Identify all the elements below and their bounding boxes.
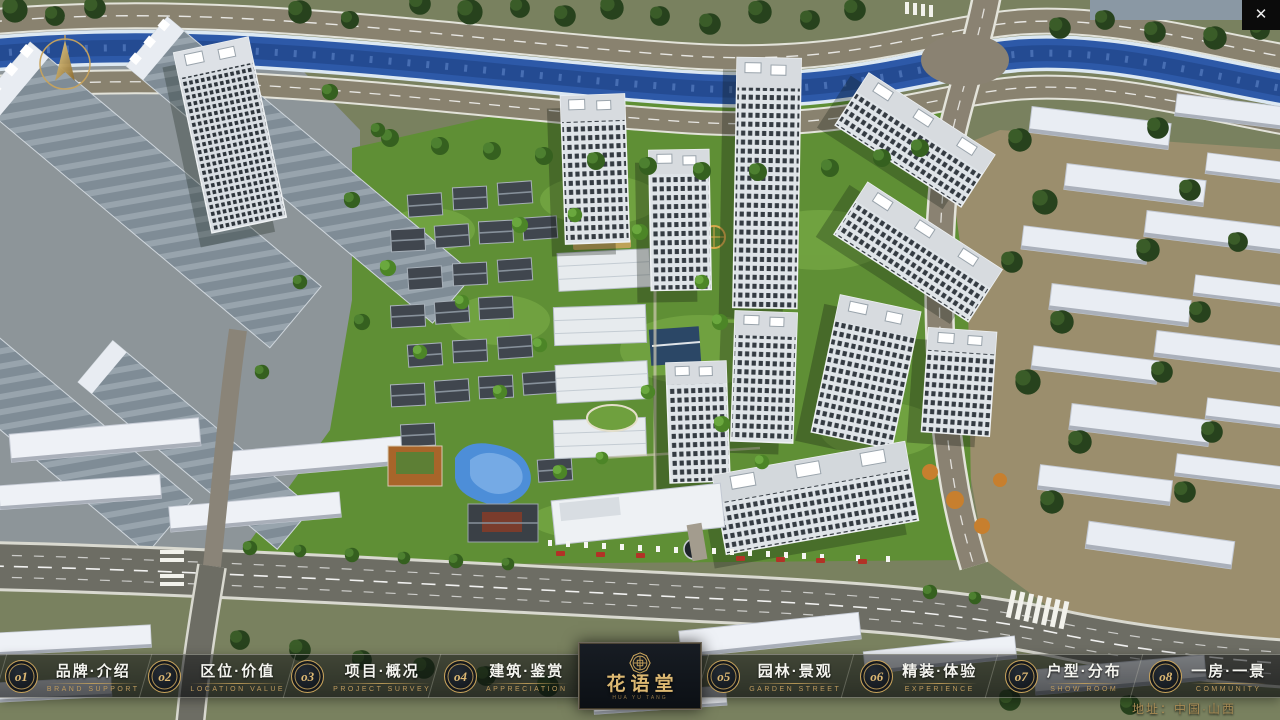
project-address: 地址：中国·山西 <box>1132 700 1236 717</box>
nav-item-floorplan[interactable]: o7 户型·分布 SHOW ROOM <box>991 655 1136 697</box>
seal-emblem-icon <box>629 652 651 674</box>
gold-divider <box>190 683 285 684</box>
compass-icon <box>36 34 94 92</box>
nav-badge-icon: o1 <box>5 660 38 693</box>
bottom-navbar: o1 品牌·介绍 BRAND SUPPORT o2 区位·价值 LOCATION… <box>0 654 1280 698</box>
nav-title: 一房·一景 <box>1191 660 1266 681</box>
close-button[interactable]: ✕ <box>1242 0 1280 30</box>
bridge <box>921 34 1009 86</box>
nav-badge-icon: o3 <box>291 660 324 693</box>
nav-title: 品牌·介绍 <box>56 660 131 681</box>
logo-title: 花语堂 <box>601 675 678 694</box>
nav-subtitle: SHOW ROOM <box>1050 686 1118 693</box>
project-logo[interactable]: 花语堂 HUA YU TANG <box>578 642 702 710</box>
gold-divider <box>902 683 977 684</box>
gold-divider <box>47 683 140 684</box>
nav-subtitle: BRAND SUPPORT <box>47 686 140 693</box>
site-plan-render <box>0 0 1280 720</box>
nav-badge-icon: o4 <box>444 660 477 693</box>
logo-subtitle: HUA YU TANG <box>612 695 667 701</box>
nav-badge-icon: o5 <box>707 660 740 693</box>
nav-subtitle: PROJECT SURVEY <box>333 686 431 693</box>
gold-divider <box>486 683 568 684</box>
gold-divider <box>333 683 431 684</box>
nav-title: 区位·价值 <box>200 660 275 681</box>
nav-subtitle: COMMUNITY <box>1196 686 1262 693</box>
nav-badge-icon: o6 <box>860 660 893 693</box>
nav-badge-icon: o7 <box>1005 660 1038 693</box>
nav-title: 园林·景观 <box>758 660 833 681</box>
nav-item-garden[interactable]: o5 园林·景观 GARDEN STREET <box>702 655 847 697</box>
nav-item-architecture[interactable]: o4 建筑·鉴赏 APPRECIATION <box>434 655 579 697</box>
gold-divider <box>749 683 841 684</box>
entrance-gate <box>468 504 538 542</box>
nav-title: 项目·概况 <box>345 660 420 681</box>
nav-subtitle: LOCATION VALUE <box>190 686 285 693</box>
nav-badge-icon: o2 <box>148 660 181 693</box>
nav-item-location[interactable]: o2 区位·价值 LOCATION VALUE <box>145 655 290 697</box>
nav-title: 户型·分布 <box>1047 660 1122 681</box>
nav-title: 建筑·鉴赏 <box>489 660 564 681</box>
nav-item-views[interactable]: o8 一房·一景 COMMUNITY <box>1136 655 1280 697</box>
nav-badge-icon: o8 <box>1149 660 1182 693</box>
nav-title: 精装·体验 <box>902 660 977 681</box>
nav-subtitle: APPRECIATION <box>486 686 568 693</box>
gold-divider <box>1047 683 1122 684</box>
nav-item-interior[interactable]: o6 精装·体验 EXPERIENCE <box>847 655 992 697</box>
nav-subtitle: GARDEN STREET <box>749 686 841 693</box>
nav-subtitle: EXPERIENCE <box>905 686 975 693</box>
gold-divider <box>1191 683 1266 684</box>
nav-item-brand[interactable]: o1 品牌·介绍 BRAND SUPPORT <box>0 655 145 697</box>
nav-item-project[interactable]: o3 项目·概况 PROJECT SURVEY <box>289 655 434 697</box>
